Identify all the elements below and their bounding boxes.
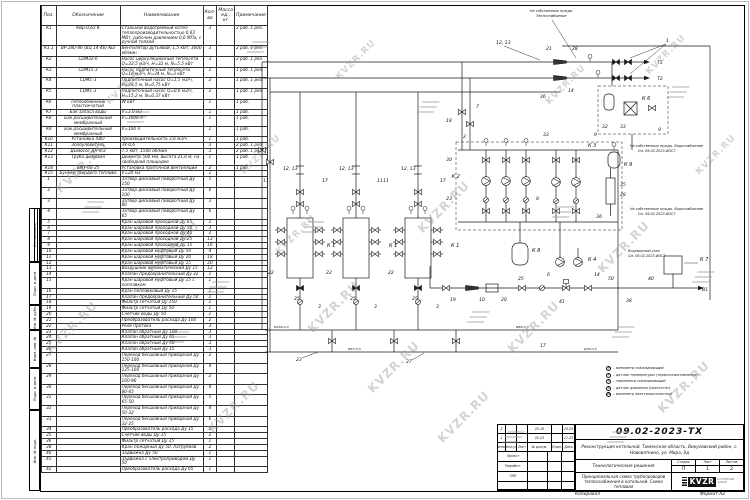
stage-label: Стадия xyxy=(672,460,696,465)
callout: 35 xyxy=(620,182,626,188)
callout: 33 xyxy=(620,124,626,130)
note-own-water: На собственные нужды. Водоснабжение xyxy=(630,207,703,211)
callout: 7 xyxy=(476,104,479,110)
revision-podp xyxy=(552,434,563,443)
legend-item: P – датчик давления (пресостат) xyxy=(606,386,742,391)
callout: 32 xyxy=(602,124,608,130)
revision-izm: 1 xyxy=(498,434,506,443)
revision-list xyxy=(517,425,528,434)
title-block-main: 09.02-2023-ТХ Реконструкция котельной. Т… xyxy=(576,425,743,490)
equipment-label-k6: К 6 xyxy=(642,96,650,102)
role-row: ГИП xyxy=(498,472,575,482)
role-row-empty xyxy=(498,482,575,490)
role-name-cell xyxy=(528,472,548,482)
project-description: Реконструкция котельной. Тюменская облас… xyxy=(576,440,743,460)
legend-item: P – манометр показывающий xyxy=(606,366,742,371)
callout: 25 xyxy=(294,296,300,302)
legend-label: – датчик температуры (термосопротивление… xyxy=(613,373,698,377)
revision-header-row: Изм. Кол.уч. Лист № докум. Подп. Дата xyxy=(498,443,575,452)
callout: 12, 13 xyxy=(401,166,416,172)
revision-koluch xyxy=(506,434,517,443)
note-own-heat: Теплоснабжение xyxy=(536,14,567,18)
callout: 20 xyxy=(501,297,507,303)
role-row: Проект xyxy=(498,452,575,462)
callout: 3 xyxy=(374,304,377,310)
title-block: 2 25-19 10.24 1 25-23 11.23 xyxy=(497,424,744,491)
legend-item: T – датчик температуры (термосопротивлен… xyxy=(606,373,742,378)
legend-label: – манометр электроконтактный xyxy=(613,392,672,396)
logo-text: KVZR xyxy=(688,477,717,487)
drawing-sheet: Согласовано Подп. и дата Инв. № дубл. Вз… xyxy=(0,0,750,500)
callout: 10 xyxy=(479,297,485,303)
revision-row: 2 25-19 10.24 xyxy=(498,425,575,434)
water-meter-line xyxy=(430,256,704,292)
callout: 3 xyxy=(436,304,439,310)
note-own-water: На собственные нужды. Водоснабжение xyxy=(630,144,703,148)
callout: 22 xyxy=(326,270,332,276)
callout: 8 xyxy=(536,196,539,202)
rev-header-podp: Подп. xyxy=(552,443,563,452)
callout: 33 xyxy=(543,132,549,138)
equipment-label-k1: К 1 xyxy=(451,243,459,249)
revision-date: 10.24 xyxy=(563,425,575,434)
callout: 23 xyxy=(446,196,452,202)
role-label xyxy=(498,482,528,490)
equipment-label-k4: К 4 xyxy=(588,257,596,263)
callout: 1 xyxy=(666,38,669,44)
revision-row: 1 25-23 11.23 xyxy=(498,434,575,443)
equipment-label-k8: К 8 xyxy=(532,248,540,254)
revision-izm: 2 xyxy=(498,425,506,434)
callout: 2 xyxy=(463,134,466,140)
callout: 30 xyxy=(446,157,452,163)
legend-label: – манометр показывающий xyxy=(613,366,664,370)
callout: 12, 13 xyxy=(496,40,511,46)
role-date-cell xyxy=(562,462,575,472)
role-name-cell xyxy=(528,452,548,462)
note-water-meter-node: См. 09.02-2023-ИОС7 xyxy=(628,254,666,258)
callout: 14 xyxy=(594,272,600,278)
equipment-label-k1: К 1 xyxy=(389,243,397,249)
rev-header-izm: Изм. xyxy=(498,443,506,452)
equipment-label-k2: К 2 xyxy=(452,174,460,180)
callout: 17 xyxy=(540,343,546,349)
logo-subtext: КОТЕЛЬНЫЙ ЗАВОД xyxy=(717,479,733,485)
role-row: Разработ. xyxy=(498,462,575,472)
flow-label-v1: В1 xyxy=(702,287,708,293)
callout: 27 xyxy=(406,359,412,365)
flow-label-t2: Т2 xyxy=(657,76,663,82)
callout: 28 xyxy=(572,46,578,52)
boiler-3 xyxy=(393,92,443,330)
sheet-value: 1 xyxy=(696,466,720,473)
callout: 38 xyxy=(626,298,632,304)
callout: 36 xyxy=(540,94,546,100)
note-water-meter-node: Водомерный узел xyxy=(628,249,661,253)
instrument-circle-icon: P xyxy=(606,386,611,391)
sheet-label: Лист xyxy=(696,460,720,465)
callout: 25 xyxy=(518,276,524,282)
stage-sheet-table: Стадия Лист Листов П 1 2 xyxy=(672,460,743,472)
note-own-water: См. 09.02-2023-ИОС7 xyxy=(638,149,676,153)
equipment-label-k7: К 7 xyxy=(700,257,709,263)
callout: 9 xyxy=(594,132,597,138)
callout: 50 xyxy=(608,276,614,282)
callout: 9 xyxy=(658,127,661,133)
callout: 12, 13 xyxy=(339,166,354,172)
format-label: Формат А2 xyxy=(700,492,725,497)
rev-header-date: Дата xyxy=(563,443,575,452)
sheets-value: 2 xyxy=(720,466,743,473)
callout: 28 xyxy=(620,192,626,198)
role-label: Проект xyxy=(498,452,528,462)
document-number: 09.02-2023-ТХ xyxy=(576,425,743,440)
equipment-label-k9: К 9 xyxy=(624,162,632,168)
role-name-cell xyxy=(528,462,548,472)
heat-exchanger-box xyxy=(598,62,668,150)
supply-return-mains xyxy=(262,20,666,81)
rev-header-dokum: № докум. xyxy=(528,443,552,452)
callout: 19 xyxy=(450,297,456,303)
logo-bars-icon xyxy=(682,477,687,486)
revision-rows: 2 25-19 10.24 1 25-23 11.23 xyxy=(498,425,575,443)
legend-label: – термометр показывающий xyxy=(613,379,666,383)
callout: 21 xyxy=(546,46,552,52)
role-signature-cell xyxy=(548,462,562,472)
revision-podp xyxy=(552,425,563,434)
callout: 22 xyxy=(388,270,394,276)
pipe-size-label: Ø57х3,5 xyxy=(347,346,361,351)
callout: 11 xyxy=(263,178,269,184)
role-signature-cell xyxy=(548,482,562,490)
callout: 3 xyxy=(318,304,321,310)
role-label: Разработ. xyxy=(498,462,528,472)
callout: 41 xyxy=(559,299,565,305)
callout: 6 xyxy=(547,272,550,278)
copied-label: Копировал xyxy=(575,492,600,497)
role-signature-cell xyxy=(548,452,562,462)
equipment-label-k1: К 1 xyxy=(327,243,335,249)
callout: 17 xyxy=(322,178,328,184)
callout: 17 xyxy=(440,178,446,184)
callout: 25 xyxy=(350,296,356,302)
callout: 18 xyxy=(446,118,452,124)
revision-date: 11.23 xyxy=(563,434,575,443)
revision-list xyxy=(517,434,528,443)
callout: 12, 13 xyxy=(283,166,298,172)
instrument-legend: P – манометр показывающий T – датчик тем… xyxy=(606,366,742,399)
boiler-2 xyxy=(331,92,381,330)
rev-header-koluch: Кол.уч. xyxy=(506,443,517,452)
title-block-revisions: 2 25-19 10.24 1 25-23 11.23 xyxy=(498,425,576,490)
instrument-circle-icon: t xyxy=(606,379,611,384)
revision-dokum: 25-23 xyxy=(528,434,552,443)
legend-item: PE – манометр электроконтактный xyxy=(606,392,742,397)
flow-label-t1: Т1 xyxy=(657,60,663,66)
pipe-size-label: Ø89х3,5 xyxy=(515,324,529,329)
role-date-cell xyxy=(562,482,575,490)
company-logo: KVZR КОТЕЛЬНЫЙ ЗАВОД xyxy=(672,473,743,490)
role-rows: Проект Разработ. ГИП xyxy=(498,452,575,482)
callout: 11 xyxy=(383,178,389,184)
role-signature-cell xyxy=(548,472,562,482)
pipe-size-label: Ø108х4,0 xyxy=(273,324,289,329)
instrument-circle-icon: PE xyxy=(606,392,611,397)
instrument-circle-icon: T xyxy=(606,373,611,378)
role-date-cell xyxy=(562,452,575,462)
building-boundary xyxy=(562,46,710,300)
equipment-label-k3: К 3 xyxy=(588,143,596,149)
legend-label: – датчик давления (пресостат) xyxy=(613,386,670,390)
sheet-title: Принципиальная схема трубопроводов тепло… xyxy=(576,473,672,490)
sheets-label: Листов xyxy=(720,460,743,465)
section-name: Технологические решения xyxy=(576,460,672,472)
stage-value: П xyxy=(672,466,696,473)
legend-item: t – термометр показывающий xyxy=(606,379,742,384)
role-name-cell xyxy=(528,482,548,490)
revision-koluch xyxy=(506,425,517,434)
callout: 23 xyxy=(296,357,302,363)
revision-dokum: 25-19 xyxy=(528,425,552,434)
callout: 36 xyxy=(596,214,602,220)
callout: 25 xyxy=(412,296,418,302)
callout: 22 xyxy=(268,270,274,276)
note-own-heat: На собственные нужды. xyxy=(530,9,573,13)
pipe-size-label: Ø76х3,5 xyxy=(583,346,597,351)
instrument-circle-icon: P xyxy=(606,366,611,371)
callout: 40 xyxy=(648,276,654,282)
role-label: ГИП xyxy=(498,472,528,482)
rev-header-list: Лист xyxy=(517,443,528,452)
role-date-cell xyxy=(562,472,575,482)
note-own-water: См. 09.02-2023-ИОС7 xyxy=(638,212,676,216)
callout: 14 xyxy=(568,88,574,94)
boiler-1 xyxy=(275,92,325,330)
